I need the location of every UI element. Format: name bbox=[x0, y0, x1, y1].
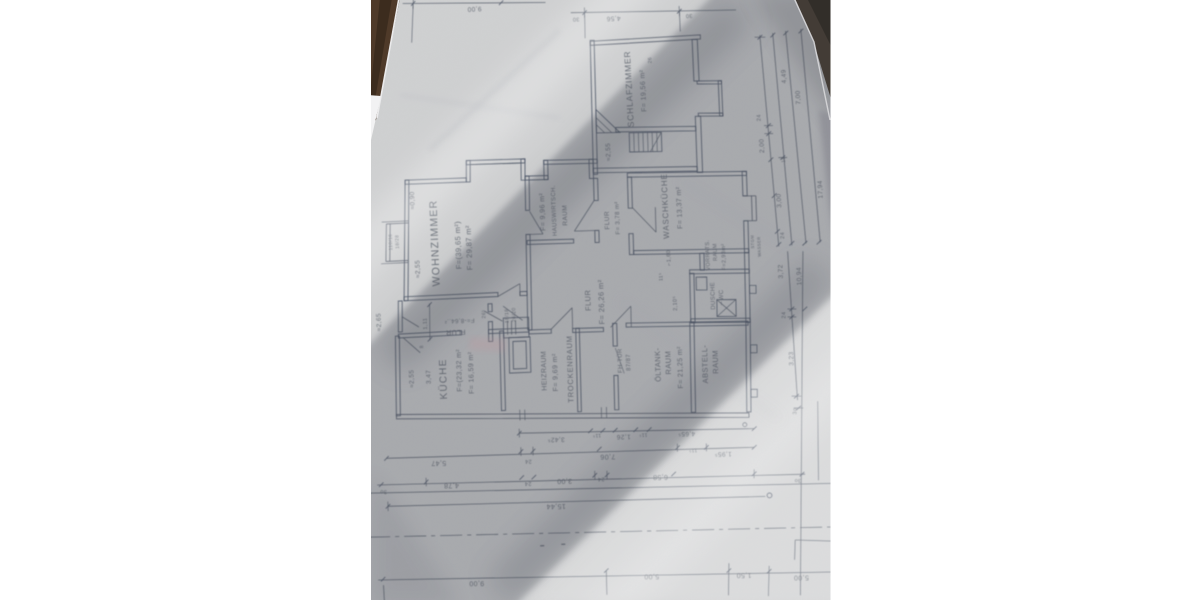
svg-text:≈2,65: ≈2,65 bbox=[376, 313, 384, 331]
svg-text:9,00: 9,00 bbox=[467, 5, 482, 13]
svg-text:≈2,55: ≈2,55 bbox=[414, 260, 422, 278]
